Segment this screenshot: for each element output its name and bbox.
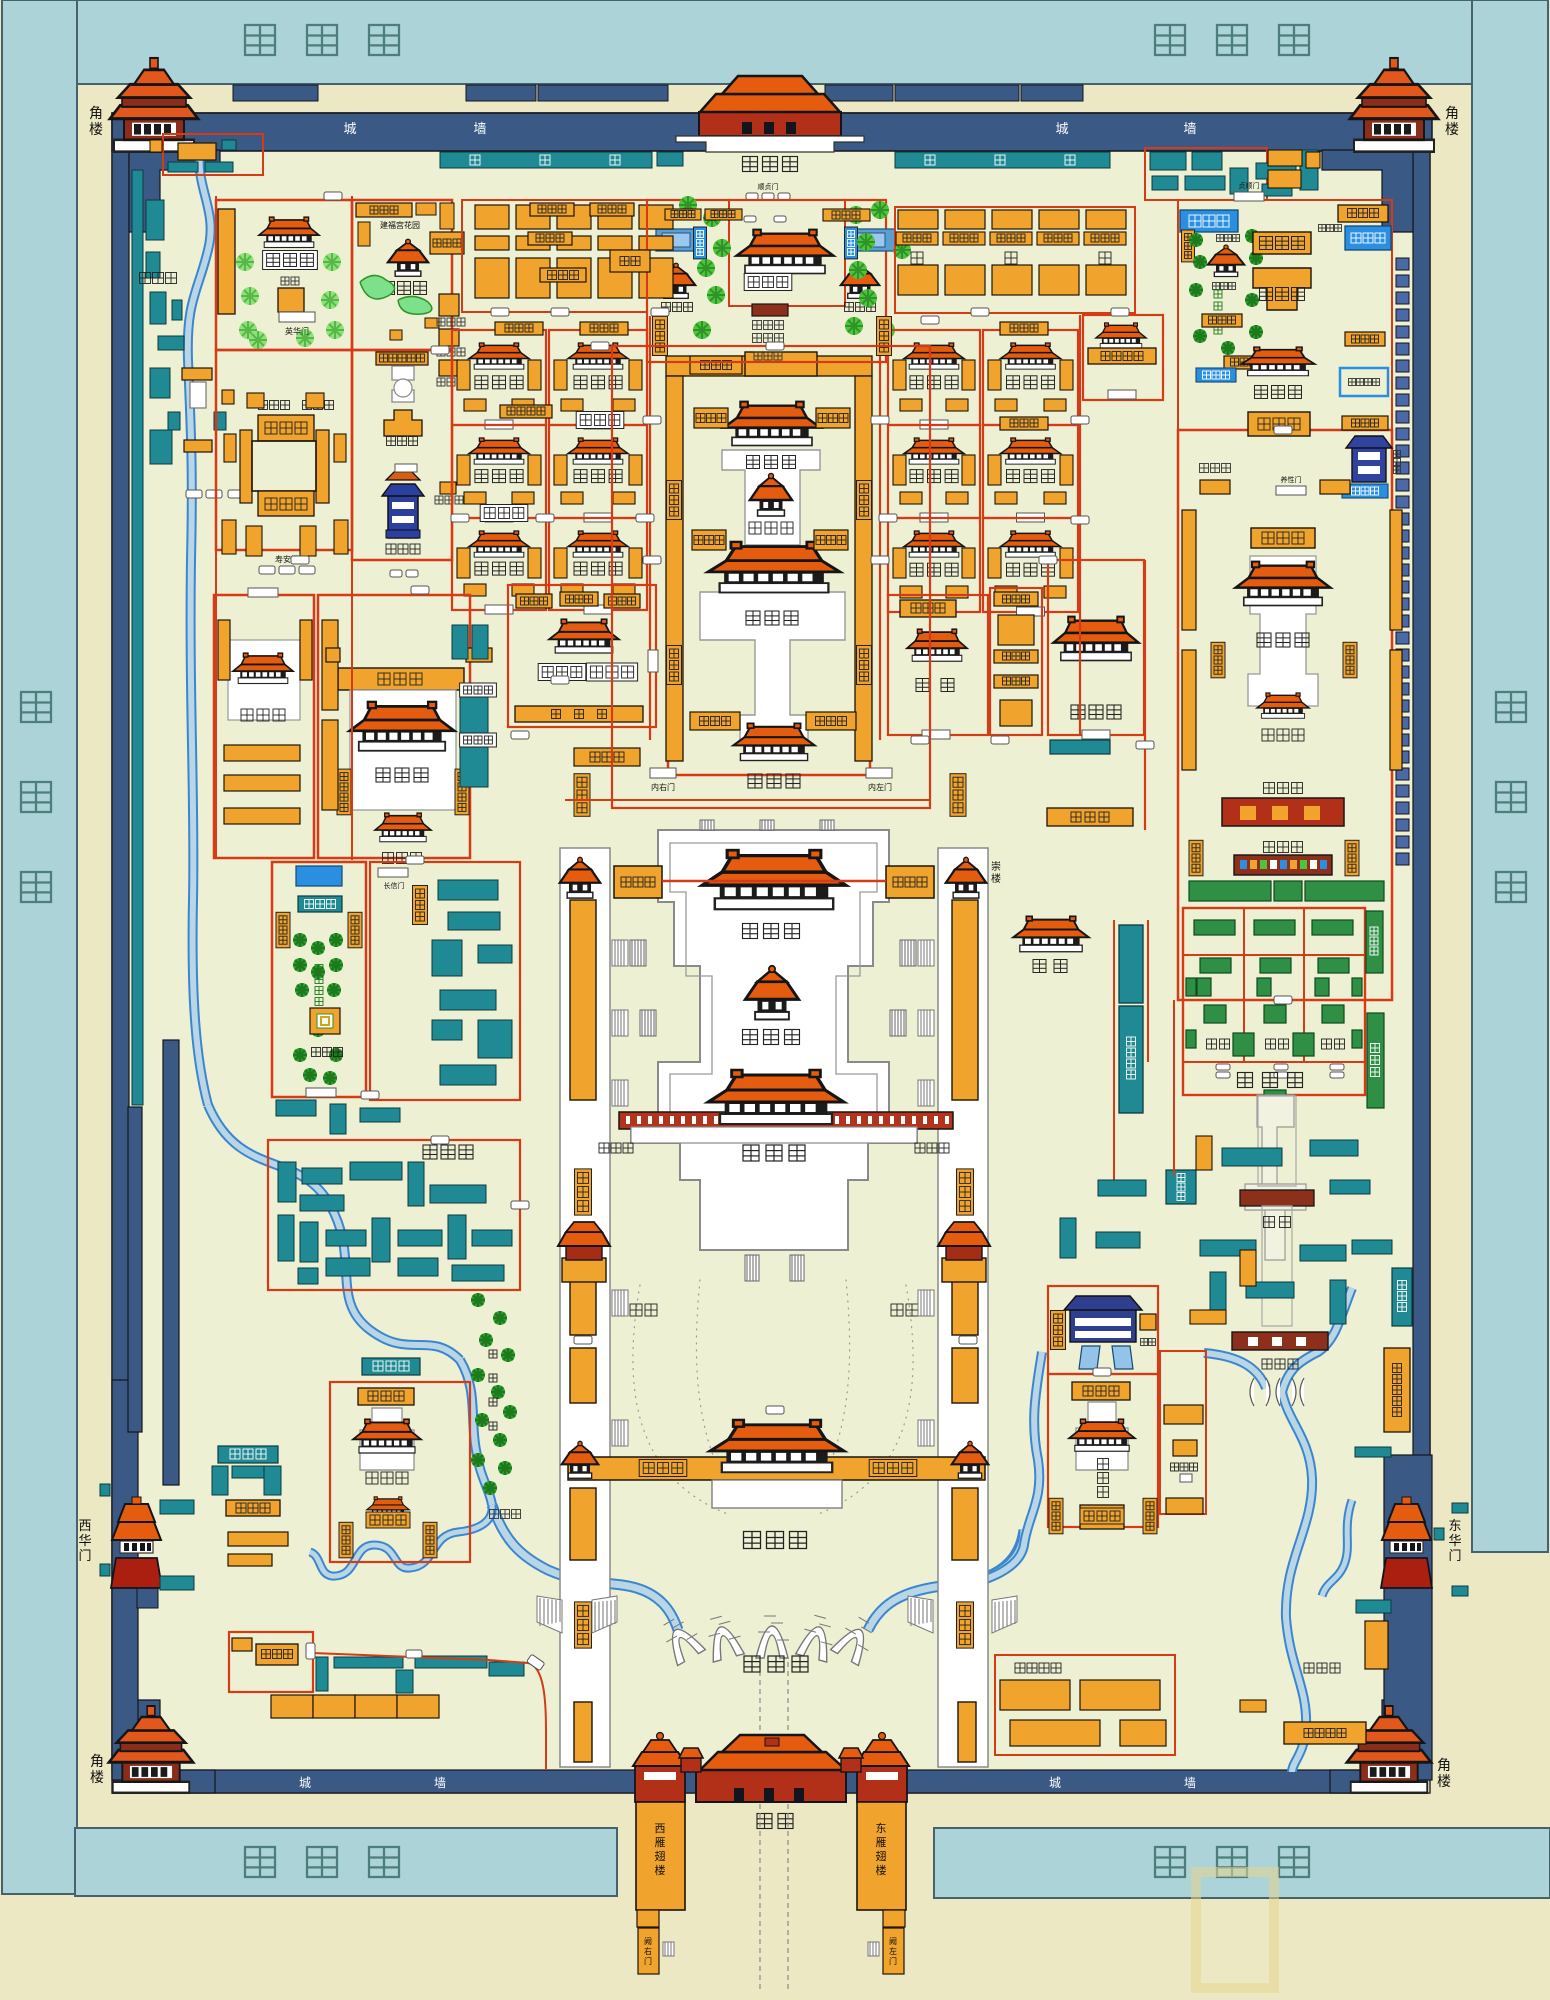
svg-text:楼: 楼 — [1445, 121, 1459, 137]
svg-text:雁: 雁 — [655, 1836, 666, 1849]
svg-text:崇: 崇 — [991, 861, 1001, 873]
svg-text:顺贞门: 顺贞门 — [758, 182, 779, 191]
svg-text:翅: 翅 — [876, 1849, 887, 1863]
svg-text:内左门: 内左门 — [868, 782, 892, 792]
svg-text:西: 西 — [655, 1823, 666, 1835]
svg-text:角: 角 — [1437, 1757, 1451, 1773]
svg-text:墙: 墙 — [1184, 1776, 1196, 1790]
svg-text:英华门: 英华门 — [285, 326, 309, 336]
svg-text:华: 华 — [78, 1533, 91, 1548]
svg-text:长信门: 长信门 — [384, 881, 405, 890]
svg-text:城: 城 — [343, 121, 356, 136]
svg-text:雁: 雁 — [876, 1836, 887, 1849]
svg-text:养性门: 养性门 — [1281, 475, 1302, 484]
svg-text:门: 门 — [644, 1956, 652, 1966]
svg-text:楼: 楼 — [655, 1863, 666, 1877]
svg-text:翅: 翅 — [655, 1849, 666, 1863]
svg-text:建福宫花园: 建福宫花园 — [380, 220, 420, 230]
svg-text:楼: 楼 — [876, 1863, 887, 1877]
svg-text:阙: 阙 — [644, 1937, 652, 1946]
svg-text:门: 门 — [78, 1548, 91, 1563]
svg-text:门: 门 — [1448, 1548, 1461, 1563]
svg-text:右: 右 — [644, 1946, 652, 1956]
svg-text:城: 城 — [1049, 1776, 1061, 1790]
svg-text:城: 城 — [299, 1776, 311, 1790]
svg-text:内右门: 内右门 — [651, 782, 675, 792]
svg-text:东: 东 — [876, 1822, 887, 1835]
svg-text:华: 华 — [1448, 1533, 1461, 1548]
svg-text:楼: 楼 — [89, 121, 103, 137]
svg-text:角: 角 — [90, 1753, 104, 1769]
svg-text:城: 城 — [1055, 121, 1068, 136]
svg-text:东: 东 — [1448, 1518, 1461, 1533]
svg-text:墙: 墙 — [1183, 121, 1196, 136]
svg-text:阙: 阙 — [889, 1937, 897, 1946]
svg-text:墙: 墙 — [473, 121, 486, 136]
svg-text:楼: 楼 — [90, 1769, 104, 1785]
svg-text:贞顺门: 贞顺门 — [1239, 181, 1260, 190]
svg-text:左: 左 — [889, 1946, 897, 1956]
svg-text:西: 西 — [78, 1518, 91, 1533]
svg-text:角: 角 — [1445, 105, 1459, 121]
svg-text:楼: 楼 — [991, 872, 1001, 885]
svg-text:角: 角 — [89, 105, 103, 121]
svg-text:楼: 楼 — [1437, 1773, 1451, 1789]
svg-text:门: 门 — [889, 1956, 897, 1966]
svg-text:墙: 墙 — [434, 1776, 446, 1790]
